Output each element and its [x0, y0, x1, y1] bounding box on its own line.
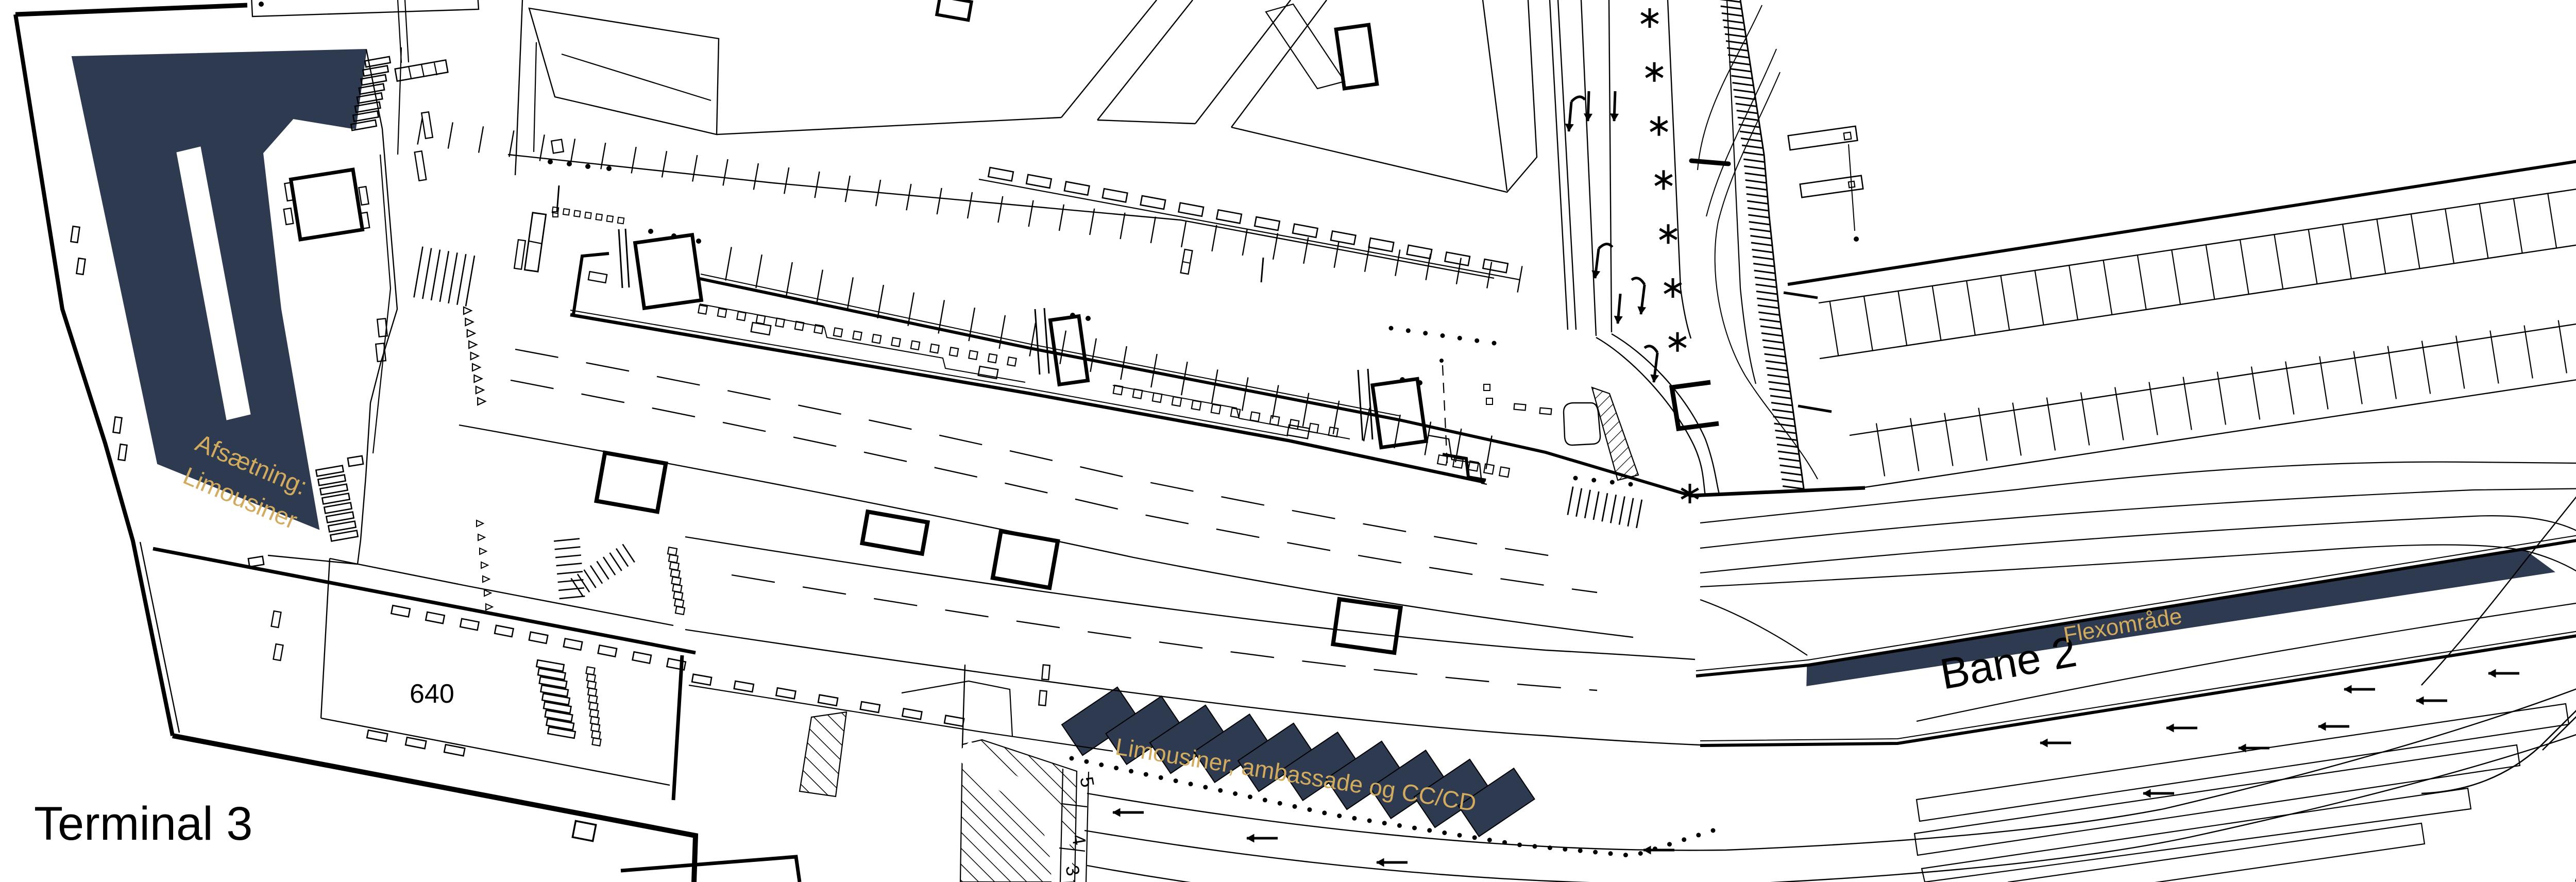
svg-text:640: 640	[410, 679, 454, 709]
svg-text:Terminal 3: Terminal 3	[34, 798, 252, 850]
